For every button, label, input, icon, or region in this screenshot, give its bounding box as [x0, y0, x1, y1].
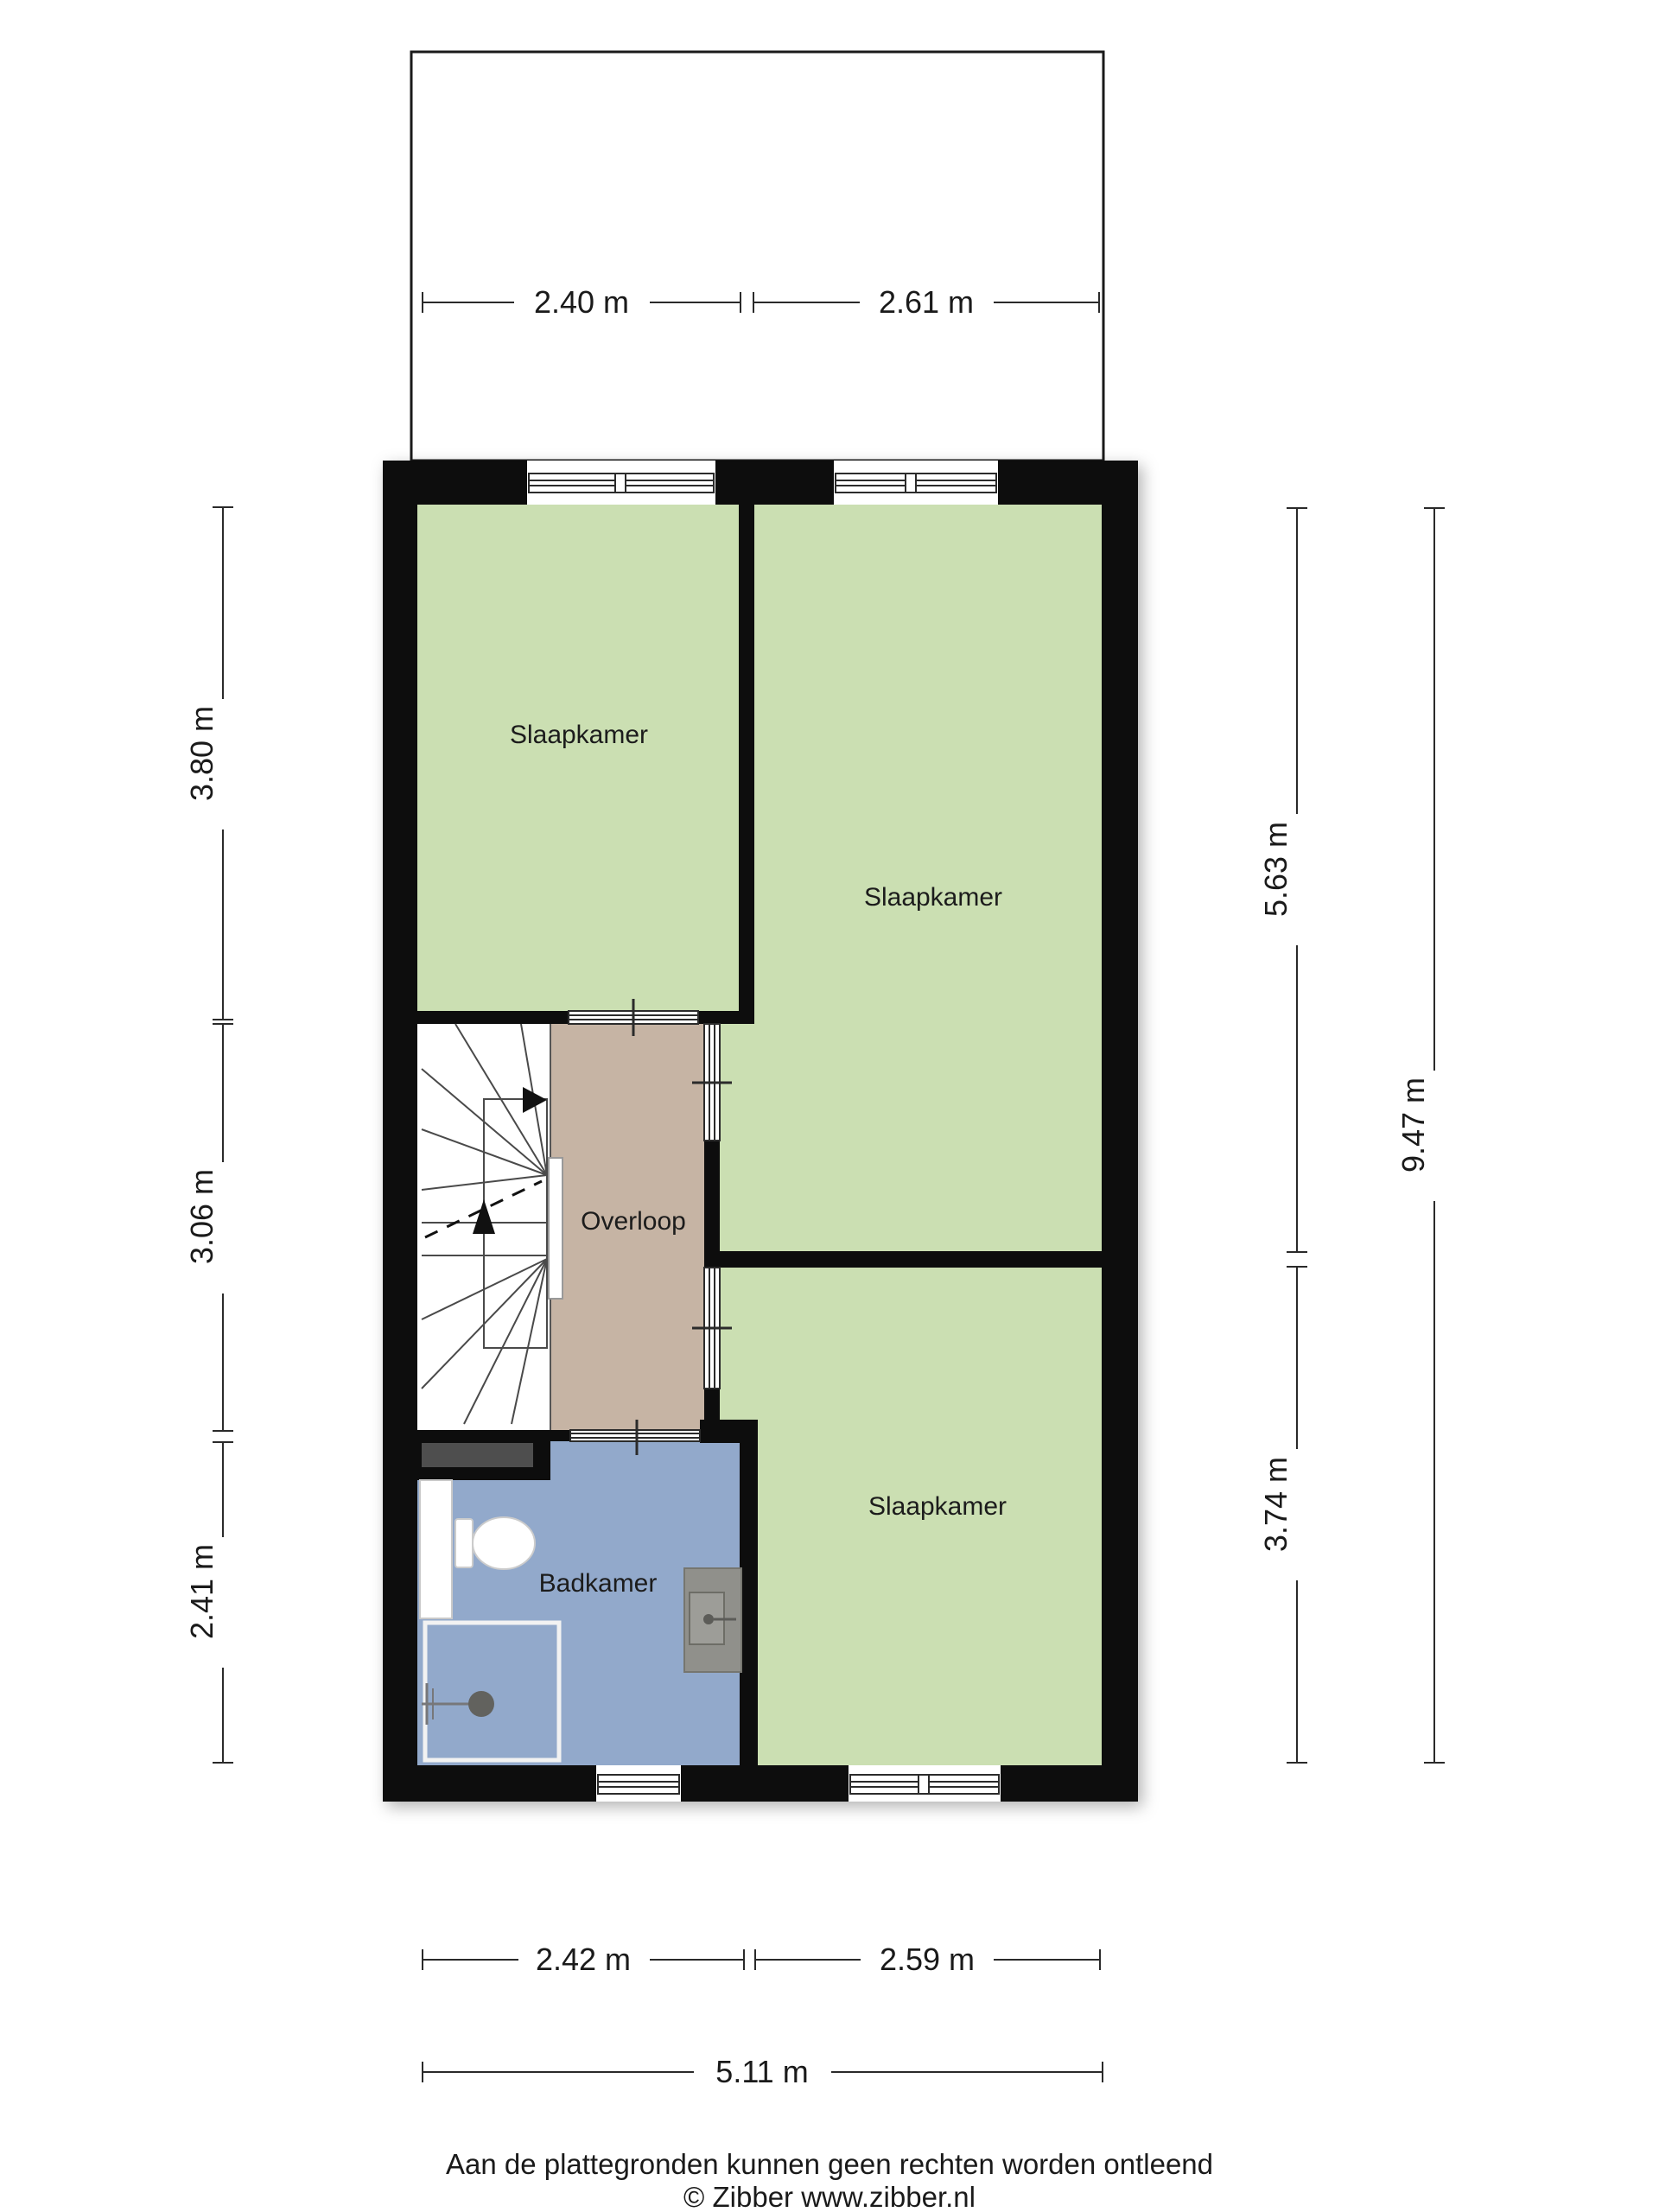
- dimension-bottom: 2.42 m 2.59 m 5.11 m: [423, 1942, 1103, 2089]
- room-label-slaapkamer-bottomright: Slaapkamer: [868, 1492, 1007, 1521]
- roof-outline: [411, 52, 1103, 461]
- window-bottom-right: [849, 1765, 1001, 1802]
- floorplan-drawing: Slaapkamer Slaapkamer Slaapkamer Overloo…: [0, 0, 1659, 2212]
- dim-label-top-2: 2.61 m: [879, 284, 974, 320]
- window-top-right: [834, 461, 998, 505]
- room-fills: [417, 505, 1102, 1765]
- bathroom-door-leaf: [420, 1480, 452, 1618]
- dim-label-left-1: 3.80 m: [184, 706, 219, 801]
- dim-label-bottom-total: 5.11 m: [715, 2054, 808, 2089]
- footer-disclaimer: Aan de plattegronden kunnen geen rechten…: [446, 2148, 1213, 2180]
- window-top-left: [527, 461, 715, 505]
- room-label-slaapkamer-right: Slaapkamer: [864, 883, 1002, 912]
- room-label-overloop: Overloop: [581, 1207, 686, 1236]
- dimension-left: 3.80 m 3.06 m 2.41 m: [184, 507, 233, 1763]
- dim-label-bottom-2: 2.59 m: [880, 1942, 975, 1977]
- footer-copyright: © Zibber www.zibber.nl: [683, 2181, 976, 2212]
- stair-door-leaf: [549, 1158, 563, 1299]
- dim-label-top-1: 2.40 m: [534, 284, 629, 320]
- room-label-badkamer: Badkamer: [539, 1569, 658, 1598]
- room-slaapkamer-right: [720, 505, 1102, 1251]
- shelf-niche: [422, 1443, 533, 1467]
- dim-label-bottom-1: 2.42 m: [536, 1942, 631, 1977]
- dim-label-right-total: 9.47 m: [1395, 1077, 1431, 1173]
- dim-label-left-3: 2.41 m: [184, 1544, 219, 1639]
- footer: Aan de plattegronden kunnen geen rechten…: [446, 2148, 1213, 2212]
- wall-segment: [700, 1420, 754, 1443]
- dim-label-right-1: 5.63 m: [1258, 822, 1294, 917]
- dimension-right: 5.63 m 3.74 m 9.47 m: [1258, 508, 1445, 1763]
- floorplan-page: Slaapkamer Slaapkamer Slaapkamer Overloo…: [0, 0, 1659, 2212]
- dim-label-left-2: 3.06 m: [184, 1169, 219, 1264]
- room-slaapkamer-topleft: [417, 505, 739, 1011]
- room-label-slaapkamer-topleft: Slaapkamer: [510, 721, 648, 749]
- washbasin-icon: [684, 1568, 741, 1672]
- window-bottom-left: [596, 1765, 681, 1802]
- dim-label-right-2: 3.74 m: [1258, 1457, 1294, 1552]
- toilet-icon: [455, 1517, 535, 1569]
